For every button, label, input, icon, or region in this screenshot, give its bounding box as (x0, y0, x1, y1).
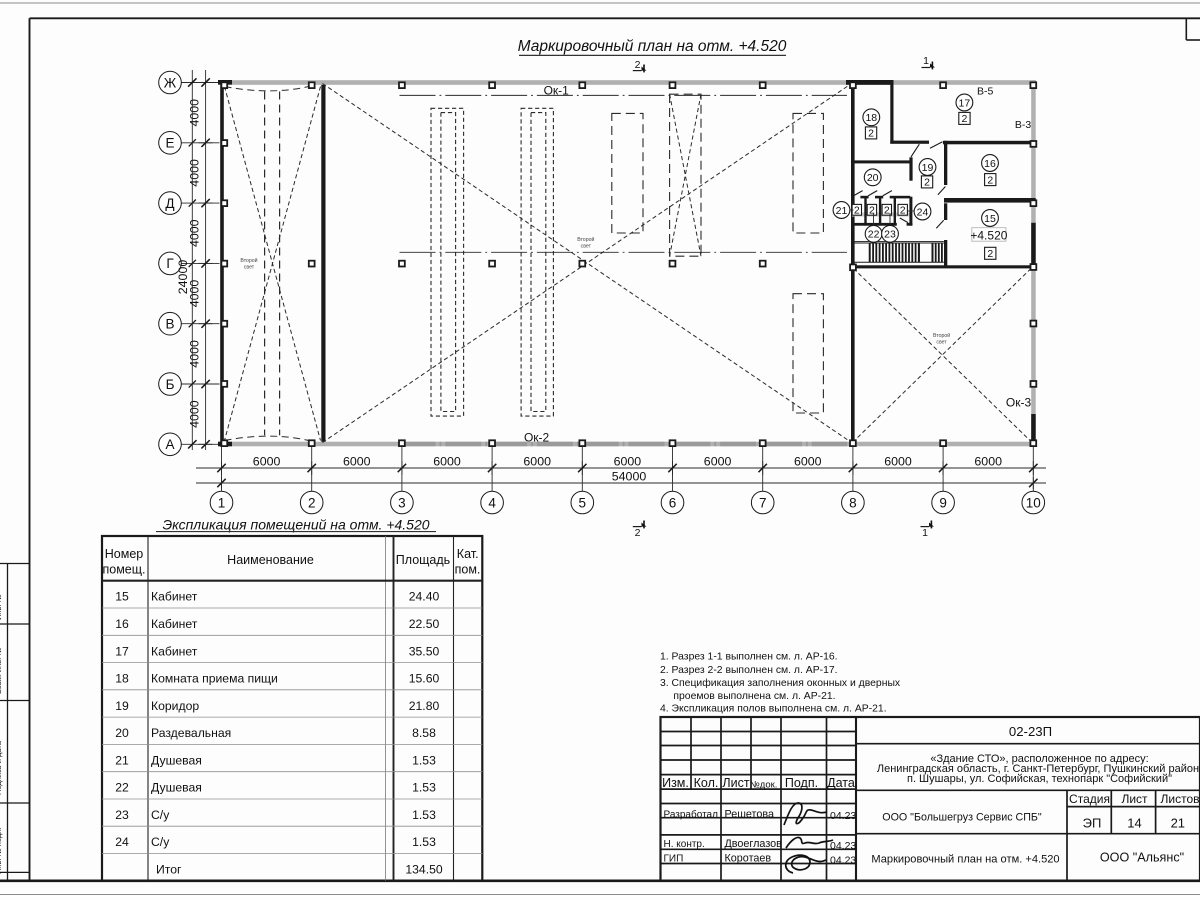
svg-text:Подпись и дата: Подпись и дата (0, 740, 3, 795)
svg-text:4000: 4000 (188, 99, 202, 127)
svg-text:В-3: В-3 (1015, 119, 1032, 131)
svg-text:2: 2 (924, 177, 930, 189)
svg-text:ГИП: ГИП (664, 854, 684, 865)
svg-text:21: 21 (836, 205, 848, 217)
svg-text:54000: 54000 (612, 470, 647, 484)
svg-text:Ок-3: Ок-3 (1006, 395, 1032, 409)
svg-text:Двоеглазов: Двоеглазов (725, 838, 783, 850)
svg-text:Ок-2: Ок-2 (524, 430, 550, 444)
svg-text:Инв. № подл.: Инв. № подл. (0, 827, 3, 874)
svg-text:п. Шушары, ул. Софийская, техн: п. Шушары, ул. Софийская, технопарк "Соф… (907, 773, 1172, 785)
svg-text:6000: 6000 (704, 455, 732, 469)
svg-text:пом.: пом. (455, 563, 481, 577)
svg-text:8: 8 (849, 495, 857, 510)
svg-text:16: 16 (984, 158, 996, 170)
svg-text:Г: Г (166, 256, 174, 271)
svg-text:4: 4 (488, 495, 496, 510)
svg-text:8.58: 8.58 (412, 726, 436, 740)
svg-text:6000: 6000 (614, 455, 642, 469)
svg-text:3: 3 (398, 495, 406, 510)
svg-text:Экспликация помещений на отм.: Экспликация помещений на отм. +4.520 (162, 517, 429, 533)
svg-text:Кат.: Кат. (457, 547, 479, 561)
svg-text:6000: 6000 (884, 455, 912, 469)
svg-text:7: 7 (759, 495, 767, 510)
svg-text:19: 19 (922, 162, 934, 174)
svg-text:2: 2 (961, 113, 967, 125)
svg-text:Лист: Лист (722, 776, 749, 790)
svg-text:2: 2 (854, 205, 860, 217)
svg-text:Номер: Номер (105, 547, 144, 561)
svg-text:В: В (165, 317, 174, 332)
svg-text:2: 2 (635, 527, 641, 539)
svg-text:2: 2 (987, 174, 993, 186)
svg-text:Решетова: Решетова (725, 808, 775, 820)
svg-text:1.53: 1.53 (412, 753, 436, 767)
svg-text:15: 15 (984, 213, 996, 225)
svg-text:02-23П: 02-23П (1009, 724, 1052, 739)
svg-text:21: 21 (1171, 816, 1185, 831)
svg-text:23: 23 (115, 808, 129, 822)
svg-text:1: 1 (218, 495, 226, 510)
svg-text:2: 2 (987, 248, 993, 260)
svg-text:35.50: 35.50 (409, 644, 440, 658)
svg-text:Итог: Итог (156, 863, 182, 877)
svg-text:6000: 6000 (523, 455, 551, 469)
svg-text:Е: Е (165, 136, 174, 151)
svg-text:6: 6 (669, 495, 677, 510)
svg-text:20: 20 (867, 172, 879, 184)
svg-text:9: 9 (939, 495, 947, 510)
svg-text:свет: свет (244, 265, 255, 271)
svg-text:Второй: Второй (577, 236, 594, 243)
svg-text:4000: 4000 (188, 219, 202, 247)
svg-text:свет: свет (936, 340, 947, 346)
svg-text:Кол.: Кол. (694, 776, 719, 790)
svg-text:2: 2 (635, 59, 641, 71)
svg-text:10: 10 (1026, 495, 1041, 510)
svg-text:Второй: Второй (240, 257, 257, 264)
svg-text:1. Разрез 1-1 выполнен см. л.: 1. Разрез 1-1 выполнен см. л. АР-16. (660, 652, 838, 663)
svg-text:2. Разрез 2-2 выполнен см. л.: 2. Разрез 2-2 выполнен см. л. АР-17. (660, 665, 838, 676)
svg-text:04.23: 04.23 (830, 840, 856, 852)
svg-text:ЭП: ЭП (1083, 816, 1102, 831)
svg-text:Д: Д (165, 196, 174, 211)
svg-text:1: 1 (922, 527, 928, 539)
svg-text:22: 22 (868, 229, 880, 241)
svg-text:Изм.: Изм. (662, 776, 689, 790)
svg-text:6000: 6000 (794, 455, 822, 469)
svg-text:Второй: Второй (933, 332, 950, 339)
svg-text:18: 18 (115, 672, 129, 686)
svg-text:2: 2 (900, 205, 906, 217)
svg-text:6000: 6000 (343, 455, 371, 469)
svg-text:5: 5 (579, 495, 587, 510)
svg-text:19: 19 (115, 699, 129, 713)
svg-text:Б: Б (166, 377, 175, 392)
svg-text:20: 20 (115, 726, 129, 740)
svg-text:Комната приема пищи: Комната приема пищи (151, 672, 278, 686)
svg-text:24: 24 (115, 835, 129, 849)
svg-text:Подп.: Подп. (785, 776, 818, 790)
svg-text:С/у: С/у (151, 808, 170, 822)
svg-text:Коротаев: Коротаев (725, 853, 772, 865)
svg-text:23: 23 (884, 229, 896, 241)
svg-text:Ж: Ж (164, 75, 177, 90)
svg-text:22: 22 (115, 781, 129, 795)
svg-text:24000: 24000 (176, 260, 190, 295)
svg-text:свет: свет (581, 244, 592, 250)
svg-text:ООО "Альянс": ООО "Альянс" (1100, 851, 1184, 865)
svg-text:1.53: 1.53 (412, 781, 436, 795)
svg-text:17: 17 (115, 644, 129, 658)
svg-text:2: 2 (868, 128, 874, 140)
svg-text:Стадия: Стадия (1069, 792, 1110, 806)
svg-text:Площадь: Площадь (396, 553, 450, 567)
svg-text:+4.520: +4.520 (970, 228, 1007, 242)
svg-text:Кабинет: Кабинет (151, 644, 198, 658)
svg-text:Наименование: Наименование (227, 553, 314, 567)
svg-text:Лист: Лист (1121, 792, 1148, 806)
svg-text:21.80: 21.80 (409, 699, 440, 713)
svg-text:Кабинет: Кабинет (151, 590, 198, 604)
svg-text:14: 14 (1127, 816, 1141, 831)
svg-text:Дата: Дата (827, 776, 855, 790)
svg-text:Взам. инв. №: Взам. инв. № (0, 648, 3, 694)
svg-text:Маркировочный план на отм. +4.: Маркировочный план на отм. +4.520 (518, 38, 787, 55)
svg-text:1.53: 1.53 (412, 835, 436, 849)
svg-text:15: 15 (115, 590, 129, 604)
svg-text:24.40: 24.40 (409, 590, 440, 604)
svg-text:04.23: 04.23 (830, 810, 856, 822)
svg-text:3. Спецификация заполнения око: 3. Спецификация заполнения оконных и две… (660, 677, 901, 689)
svg-text:2: 2 (308, 495, 316, 510)
svg-text:18: 18 (865, 112, 877, 124)
svg-text:Ок-1: Ок-1 (544, 84, 570, 98)
svg-text:Коридор: Коридор (151, 699, 199, 713)
svg-text:Кабинет: Кабинет (151, 617, 198, 631)
svg-text:В-5: В-5 (977, 86, 994, 98)
svg-text:6000: 6000 (974, 455, 1002, 469)
svg-text:16: 16 (115, 617, 129, 631)
svg-text:134.50: 134.50 (405, 863, 442, 877)
svg-text:4. Экспликация полов выполнена: 4. Экспликация полов выполнена см. л. АР… (660, 703, 887, 714)
svg-text:№док.: №док. (750, 780, 778, 791)
svg-text:Раздевальная: Раздевальная (151, 726, 231, 740)
svg-text:24: 24 (917, 206, 929, 218)
svg-text:Листов: Листов (1161, 792, 1200, 806)
svg-text:04.23: 04.23 (830, 855, 856, 867)
svg-text:17: 17 (959, 97, 971, 109)
svg-text:помещ.: помещ. (102, 563, 145, 577)
svg-text:Разработал: Разработал (664, 809, 719, 821)
svg-text:1.53: 1.53 (412, 808, 436, 822)
svg-text:С/у: С/у (151, 835, 170, 849)
svg-text:4000: 4000 (188, 400, 202, 428)
svg-text:Инв. №: Инв. № (0, 594, 3, 620)
svg-text:22.50: 22.50 (409, 617, 440, 631)
svg-text:6000: 6000 (253, 455, 281, 469)
svg-text:4000: 4000 (188, 340, 202, 368)
svg-text:Маркировочный план на отм. +4.: Маркировочный план на отм. +4.520 (871, 854, 1059, 866)
svg-text:4000: 4000 (188, 159, 202, 187)
svg-text:Душевая: Душевая (151, 781, 202, 795)
svg-text:проемов выполнена см. л. АР-21: проемов выполнена см. л. АР-21. (673, 691, 835, 702)
svg-text:Душевая: Душевая (151, 753, 202, 767)
svg-text:А: А (165, 437, 174, 452)
svg-text:ООО "Большегруз Сервис СПБ": ООО "Большегруз Сервис СПБ" (882, 812, 1042, 824)
svg-text:2: 2 (884, 205, 890, 217)
svg-text:Н. контр.: Н. контр. (664, 839, 705, 850)
svg-text:2: 2 (869, 205, 875, 217)
svg-text:6000: 6000 (433, 455, 461, 469)
svg-text:15.60: 15.60 (409, 672, 440, 686)
svg-text:1: 1 (923, 55, 929, 67)
svg-text:21: 21 (115, 753, 129, 767)
